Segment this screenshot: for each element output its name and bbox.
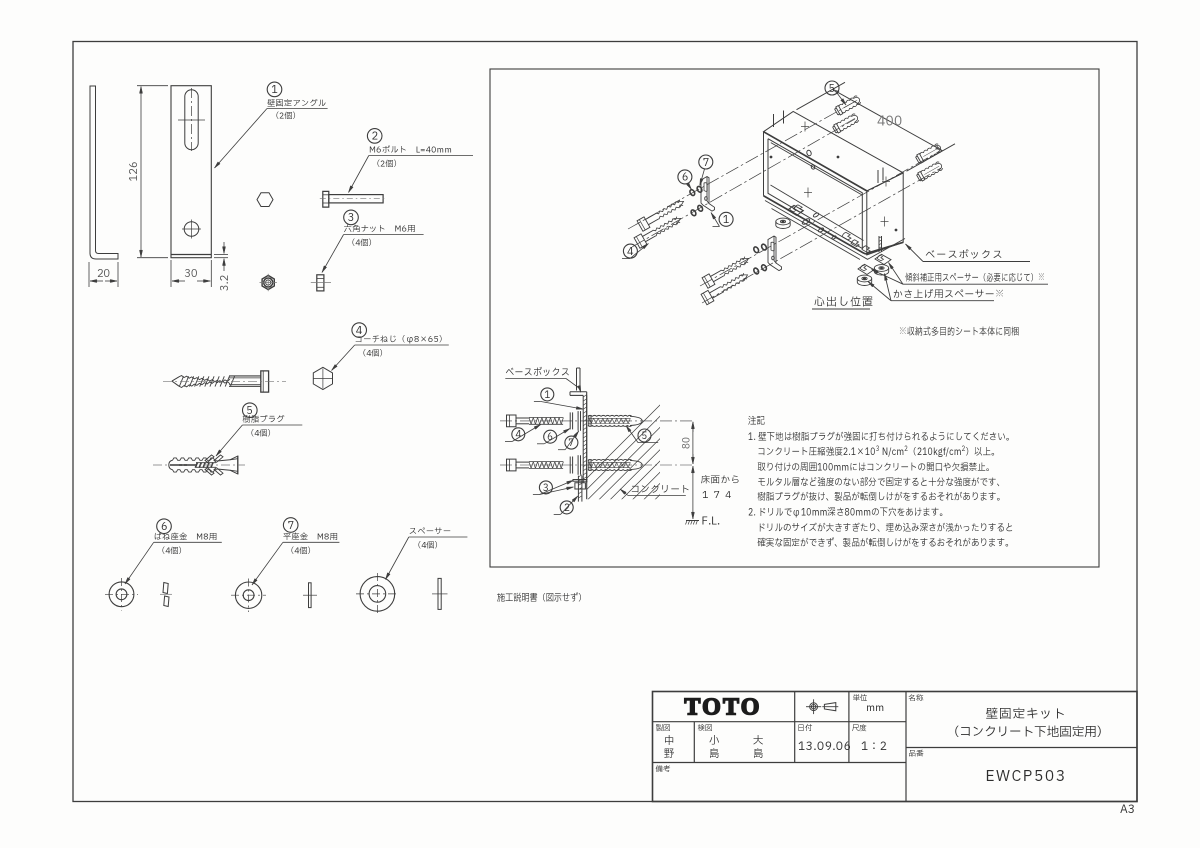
svg-text:4: 4 xyxy=(627,244,634,260)
svg-text:4: 4 xyxy=(515,429,521,443)
svg-text:5: 5 xyxy=(642,430,648,444)
svg-text:30: 30 xyxy=(184,266,197,282)
svg-text:樹脂プラグが抜け、製品が転倒しけがをするおそれがあります。: 樹脂プラグが抜け、製品が転倒しけがをするおそれがあります。 xyxy=(757,490,1005,505)
svg-text:１７４: １７４ xyxy=(701,489,736,503)
svg-text:尺度: 尺度 xyxy=(852,724,867,735)
svg-text:名称: 名称 xyxy=(909,694,924,705)
svg-text:床面から: 床面から xyxy=(701,474,741,488)
svg-text:確実な固定ができず、製品が転倒しけがをするおそれがあります。: 確実な固定ができず、製品が転倒しけがをするおそれがあります。 xyxy=(756,536,1013,551)
svg-text:（4個）: （4個） xyxy=(358,347,388,360)
svg-text:（2個）: （2個） xyxy=(372,158,402,171)
svg-text:施工説明書（図示せず）: 施工説明書（図示せず） xyxy=(497,590,586,605)
svg-text:（4個）: （4個） xyxy=(413,539,443,552)
svg-text:7: 7 xyxy=(702,155,709,171)
svg-text:6: 6 xyxy=(547,431,553,445)
svg-text:A3: A3 xyxy=(1120,802,1135,819)
svg-text:島: 島 xyxy=(709,746,720,762)
svg-text:（コンクリート下地固定用）: （コンクリート下地固定用） xyxy=(947,723,1110,742)
svg-text:ドリルのサイズが大きすぎたり、埋め込み深さが浅かったりすると: ドリルのサイズが大きすぎたり、埋め込み深さが浅かったりすると xyxy=(757,521,1013,536)
svg-text:注記: 注記 xyxy=(748,414,765,429)
svg-text:（4個）: （4個） xyxy=(286,545,316,558)
svg-text:6: 6 xyxy=(682,170,689,186)
svg-text:島: 島 xyxy=(753,746,764,762)
svg-text:野: 野 xyxy=(664,746,675,762)
svg-text:80: 80 xyxy=(681,437,695,449)
svg-text:（4個）: （4個） xyxy=(157,545,187,558)
svg-text:傾斜補正用スペーサー（必要に応じて）※: 傾斜補正用スペーサー（必要に応じて）※ xyxy=(905,271,1045,286)
svg-text:ばね座金 M8用: ばね座金 M8用 xyxy=(154,531,218,544)
svg-text:EWCP503: EWCP503 xyxy=(985,765,1066,788)
svg-text:126: 126 xyxy=(126,162,142,182)
svg-text:（4個）: （4個） xyxy=(347,237,377,250)
svg-text:（4個）: （4個） xyxy=(246,427,276,440)
svg-text:1: 1 xyxy=(271,82,278,98)
svg-text:TOTO: TOTO xyxy=(684,695,761,721)
svg-text:※収納式多目的シート本体に同梱: ※収納式多目的シート本体に同梱 xyxy=(899,325,1019,339)
svg-text:（2個）: （2個） xyxy=(271,110,301,123)
svg-text:2. ドリルでφ10mm深さ80mmの下穴をあけます。: 2. ドリルでφ10mm深さ80mmの下穴をあけます。 xyxy=(748,506,948,521)
svg-text:5: 5 xyxy=(829,81,836,97)
svg-text:mm: mm xyxy=(866,701,884,716)
svg-text:20: 20 xyxy=(97,266,110,282)
svg-text:1. 壁下地は樹脂プラグが強固に打ち付けられるようにしてくだ: 1. 壁下地は樹脂プラグが強固に打ち付けられるようにしてください。 xyxy=(748,430,1015,445)
svg-text:モルタル層など強度のない部分で固定すると十分な強度がです、: モルタル層など強度のない部分で固定すると十分な強度がです、 xyxy=(757,476,1005,491)
svg-text:取り付けの周囲100mmにはコンクリートの開口や欠損禁止。: 取り付けの周囲100mmにはコンクリートの開口や欠損禁止。 xyxy=(756,461,994,476)
svg-text:壁固定キット: 壁固定キット xyxy=(985,705,1066,724)
svg-text:六角ナット M6用: 六角ナット M6用 xyxy=(344,223,416,236)
svg-text:M6ボルト L=40mm: M6ボルト L=40mm xyxy=(369,144,452,157)
svg-text:2: 2 xyxy=(564,502,570,516)
svg-text:品番: 品番 xyxy=(909,749,924,760)
svg-text:1：2: 1：2 xyxy=(861,739,887,756)
svg-text:1: 1 xyxy=(544,389,550,403)
svg-text:ベースボックス: ベースボックス xyxy=(925,248,1003,263)
svg-text:3.2: 3.2 xyxy=(217,275,233,292)
svg-text:日付: 日付 xyxy=(798,724,813,735)
svg-text:2: 2 xyxy=(371,129,378,145)
svg-text:樹脂プラグ: 樹脂プラグ xyxy=(241,413,285,426)
svg-text:400: 400 xyxy=(877,112,903,132)
svg-text:F.L.: F.L. xyxy=(702,513,720,530)
svg-text:心出し位置: 心出し位置 xyxy=(814,294,874,311)
svg-text:スペーサー: スペーサー xyxy=(409,525,451,538)
svg-text:13.09.06: 13.09.06 xyxy=(798,739,851,756)
svg-text:1: 1 xyxy=(723,212,730,228)
svg-text:備考: 備考 xyxy=(656,765,671,776)
svg-text:平座金 M8用: 平座金 M8用 xyxy=(283,531,338,544)
svg-text:コーチねじ（φ8×65）: コーチねじ（φ8×65） xyxy=(355,333,448,346)
svg-text:壁固定アングル: 壁固定アングル xyxy=(267,97,326,110)
